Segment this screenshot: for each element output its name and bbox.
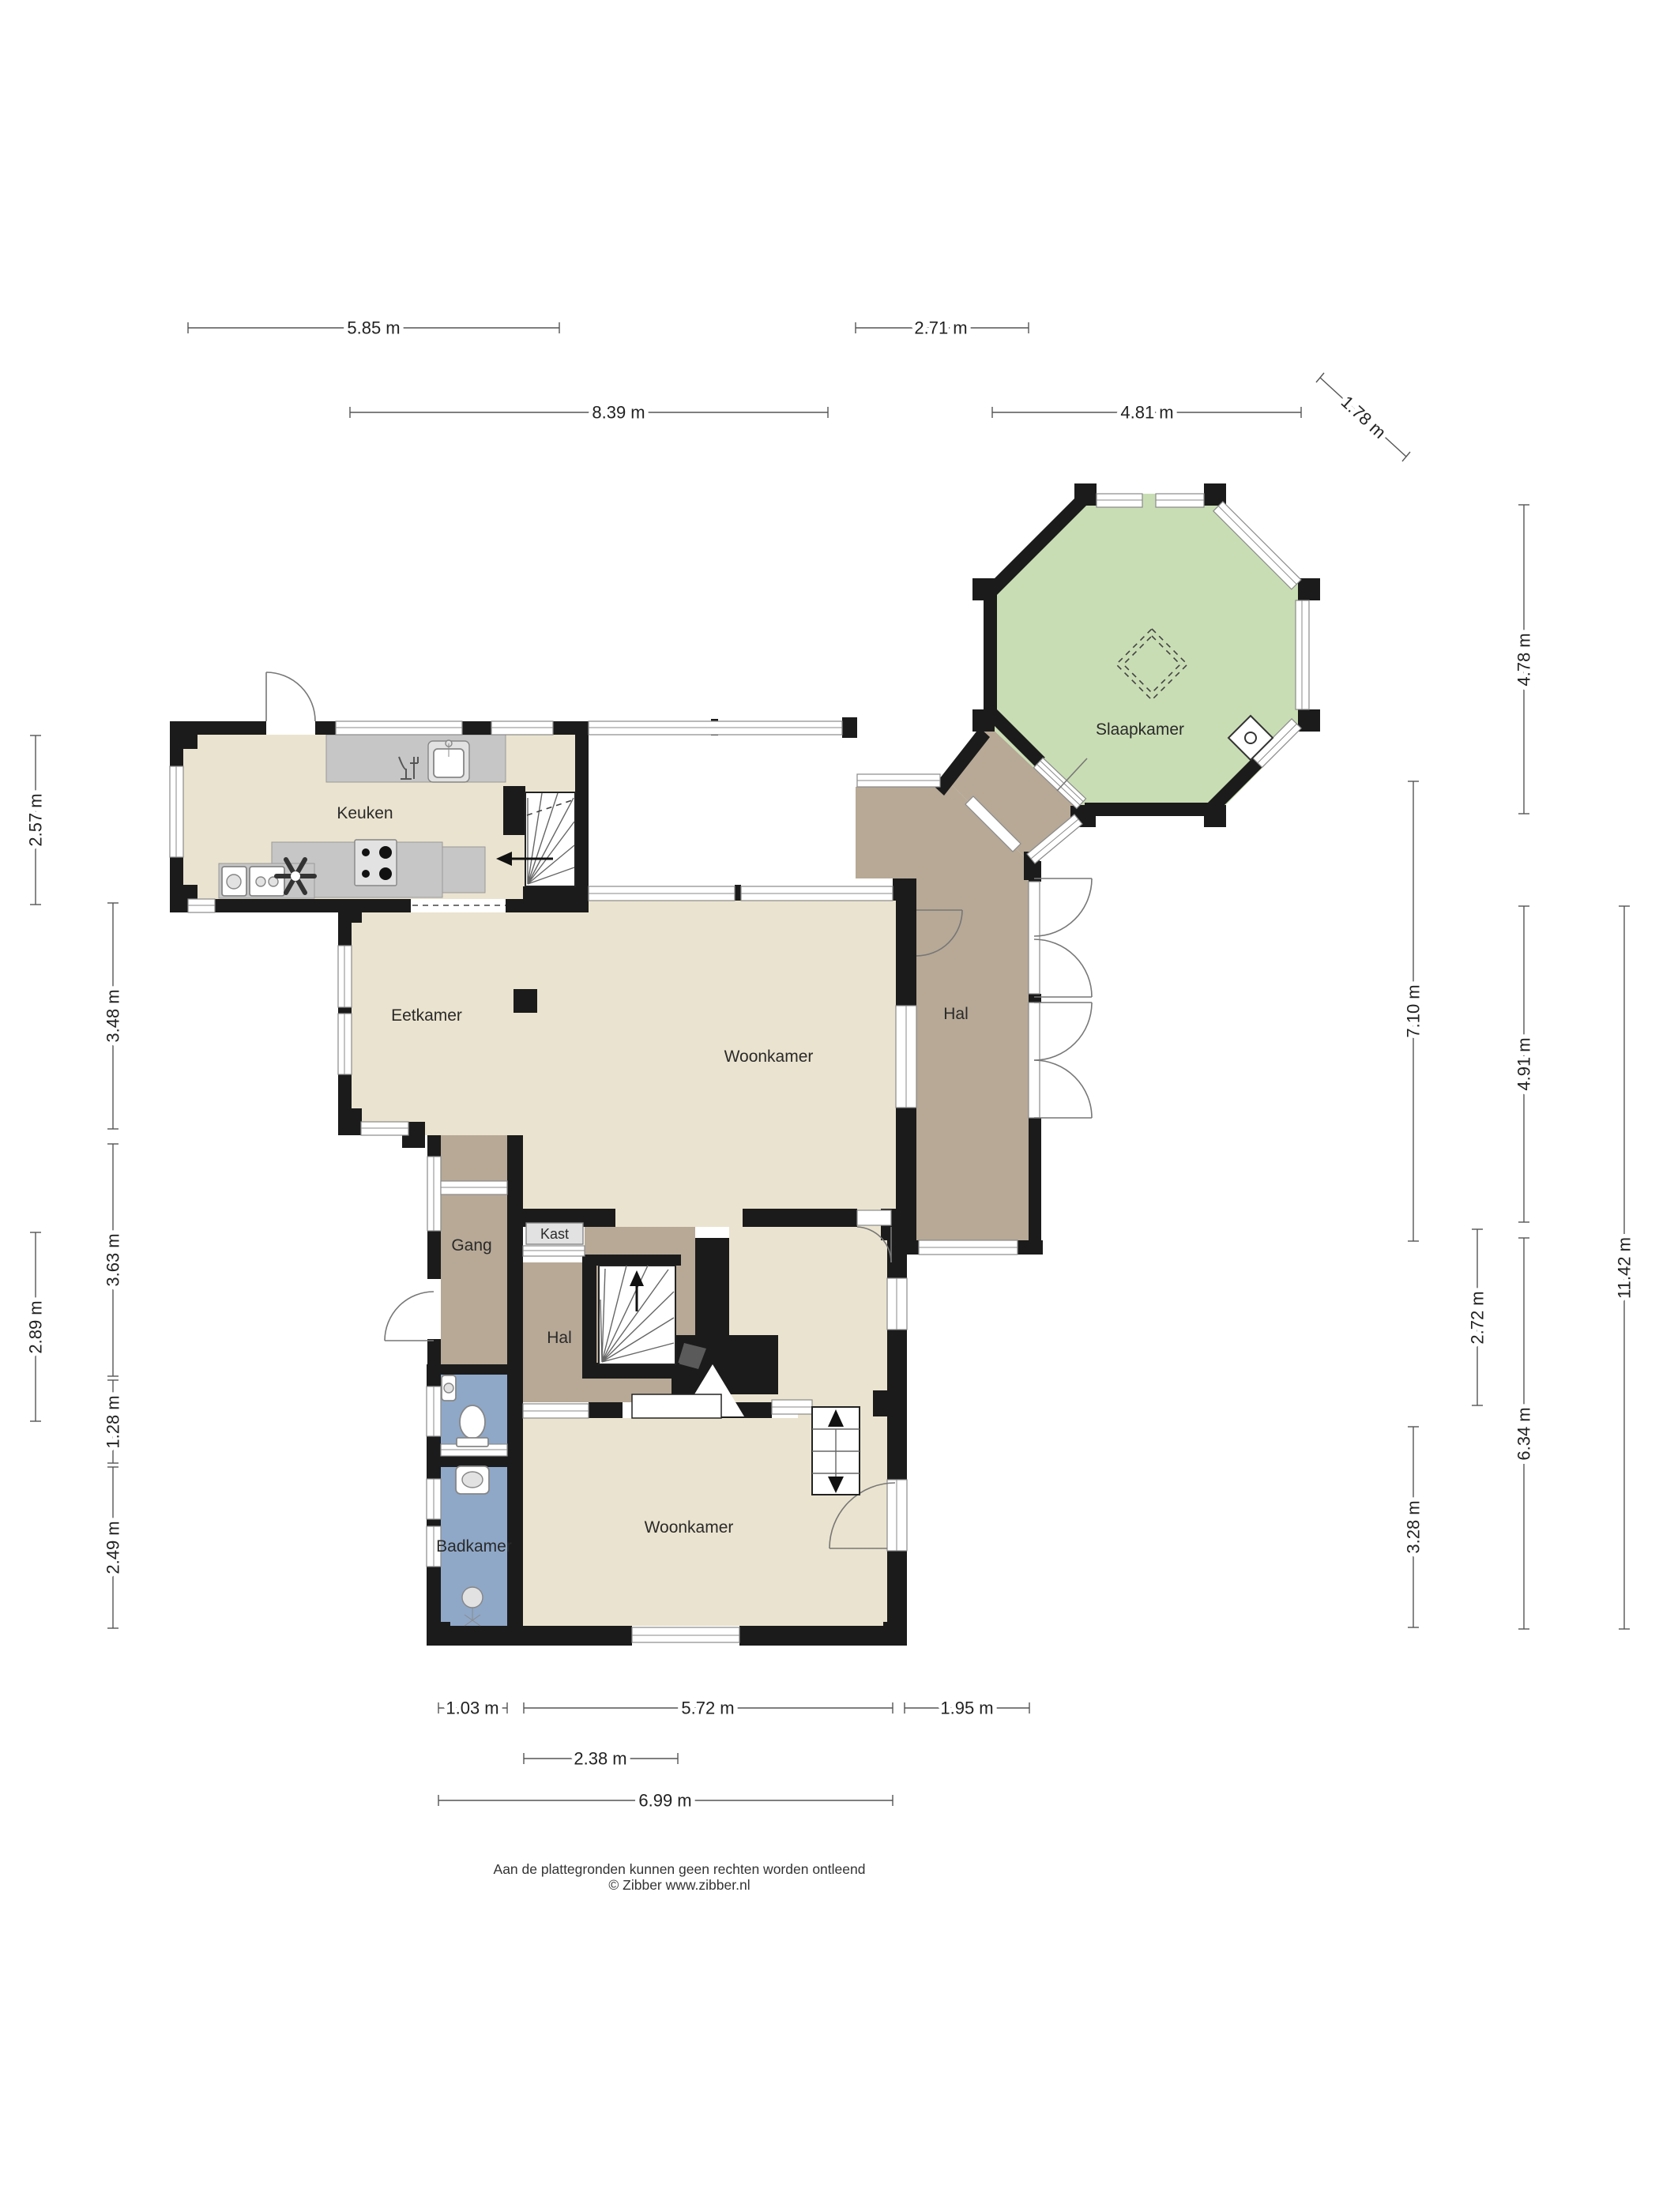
- window: [361, 1122, 408, 1135]
- door-opening: [887, 1480, 907, 1551]
- label-badkamer: Badkamer: [436, 1537, 512, 1556]
- interior-door-band: [523, 1404, 589, 1418]
- dim-left-289: 2.89 m: [26, 1232, 46, 1421]
- footer-copyright: © Zibber www.zibber.nl: [608, 1877, 750, 1893]
- svg-text:2.57 m: 2.57 m: [26, 793, 46, 846]
- svg-text:1.95 m: 1.95 m: [940, 1698, 993, 1718]
- window: [857, 774, 940, 787]
- window: [338, 1014, 352, 1074]
- label-hal-onder: Hal: [547, 1329, 572, 1347]
- hal-french-door-4: [1034, 1060, 1092, 1118]
- window: [772, 1400, 812, 1414]
- kitchen-island-ext: [442, 847, 485, 893]
- svg-text:2.72 m: 2.72 m: [1468, 1291, 1488, 1344]
- floorplan-canvas: Keuken Eetkamer Woonkamer Hal Slaapkamer…: [0, 0, 1659, 2212]
- burner-icon: [362, 870, 370, 878]
- label-gang: Gang: [451, 1236, 491, 1255]
- dim-right-328: 3.28 m: [1404, 1427, 1424, 1627]
- svg-text:11.42 m: 11.42 m: [1615, 1237, 1635, 1299]
- window: [589, 886, 735, 901]
- svg-text:5.72 m: 5.72 m: [681, 1698, 734, 1718]
- dim-top-585: 5.85 m: [188, 318, 559, 338]
- hal-french-door-3: [1034, 1003, 1092, 1060]
- dim-right-710: 7.10 m: [1404, 781, 1424, 1241]
- toilet-icon: [460, 1405, 485, 1439]
- pillar: [513, 989, 537, 1013]
- burner-icon: [379, 867, 392, 880]
- stove-icon: [355, 840, 397, 886]
- window: [919, 1240, 1018, 1255]
- dim-right-1142: 11.42 m: [1615, 906, 1635, 1629]
- svg-text:1.03 m: 1.03 m: [446, 1698, 498, 1718]
- window: [1097, 494, 1142, 507]
- window: [1156, 494, 1204, 507]
- footer-disclaimer: Aan de plattegronden kunnen geen rechten…: [494, 1861, 866, 1877]
- label-slaapkamer: Slaapkamer: [1096, 720, 1184, 739]
- bath-sink-basin-icon: [462, 1472, 483, 1488]
- svg-text:6.34 m: 6.34 m: [1514, 1407, 1534, 1460]
- svg-text:4.78 m: 4.78 m: [1514, 633, 1534, 686]
- burner-icon: [362, 848, 370, 856]
- floorplan-page: Keuken Eetkamer Woonkamer Hal Slaapkamer…: [0, 0, 1659, 2212]
- washer-door-icon: [227, 875, 241, 889]
- label-hal-boven: Hal: [943, 1005, 969, 1023]
- dim-right-491: 4.91 m: [1514, 906, 1534, 1222]
- window: [741, 886, 893, 901]
- svg-text:2.38 m: 2.38 m: [574, 1749, 626, 1769]
- window: [427, 1157, 441, 1231]
- dim-bottom-103: 1.03 m: [438, 1698, 507, 1718]
- dim-left-249: 2.49 m: [103, 1467, 123, 1628]
- central-winder-stairs: [599, 1266, 675, 1364]
- kast-door-band: [523, 1246, 585, 1256]
- hal-french-door-2: [1034, 939, 1092, 997]
- dim-left-128: 1.28 m: [103, 1380, 123, 1463]
- svg-text:3.63 m: 3.63 m: [103, 1233, 123, 1286]
- svg-text:6.99 m: 6.99 m: [638, 1791, 691, 1811]
- window: [427, 1479, 441, 1519]
- wc-sink-basin-icon: [444, 1383, 453, 1393]
- window: [887, 1278, 907, 1330]
- label-woonkamer-boven: Woonkamer: [724, 1048, 814, 1066]
- french-door-opening: [1029, 882, 1040, 994]
- kitchen-entry-door: [266, 672, 315, 721]
- dim-right-272: 2.72 m: [1468, 1229, 1488, 1405]
- gang-exterior-door: [385, 1292, 434, 1341]
- window: [170, 766, 183, 857]
- window-band-courtyard: [589, 721, 842, 735]
- svg-text:8.39 m: 8.39 m: [592, 403, 645, 423]
- window: [427, 1386, 441, 1436]
- label-keuken: Keuken: [337, 804, 393, 822]
- door-opening: [857, 1210, 891, 1225]
- dim-top-481: 4.81 m: [992, 403, 1301, 423]
- boiler-icon: [250, 867, 284, 896]
- dim-bottom-699: 6.99 m: [438, 1791, 893, 1811]
- window: [632, 1627, 739, 1642]
- kitchen-counter-top: [326, 735, 506, 782]
- footer: Aan de plattegronden kunnen geen rechten…: [494, 1861, 866, 1893]
- interior-door-band: [441, 1181, 507, 1194]
- dim-left-348: 3.48 m: [103, 903, 123, 1129]
- svg-text:2.49 m: 2.49 m: [103, 1521, 123, 1574]
- window: [491, 721, 553, 735]
- svg-text:7.10 m: 7.10 m: [1404, 984, 1424, 1037]
- dim-left-363: 3.63 m: [103, 1144, 123, 1376]
- window: [338, 946, 352, 1007]
- toilet-tank-icon: [457, 1438, 488, 1446]
- boiler-dial-icon: [256, 877, 265, 886]
- dim-left-257: 2.57 m: [26, 735, 46, 905]
- dim-top-839: 8.39 m: [350, 403, 828, 423]
- dim-top-271: 2.71 m: [856, 318, 1029, 338]
- dim-bottom-572: 5.72 m: [524, 1698, 893, 1718]
- dim-right-478: 4.78 m: [1514, 505, 1534, 814]
- hearth-front: [632, 1394, 721, 1418]
- svg-text:4.81 m: 4.81 m: [1120, 403, 1173, 423]
- window: [1296, 600, 1309, 709]
- svg-text:1.28 m: 1.28 m: [103, 1395, 123, 1448]
- svg-text:3.48 m: 3.48 m: [103, 989, 123, 1042]
- burner-icon: [379, 846, 392, 859]
- straight-stairs: [812, 1407, 860, 1495]
- label-woonkamer-onder: Woonkamer: [645, 1518, 734, 1537]
- shower-head-icon: [462, 1587, 483, 1608]
- label-eetkamer: Eetkamer: [391, 1006, 462, 1025]
- svg-text:2.89 m: 2.89 m: [26, 1300, 46, 1353]
- dim-right-634: 6.34 m: [1514, 1238, 1534, 1629]
- dim-diag-178: 1.78 m: [1316, 373, 1410, 461]
- label-kast: Kast: [540, 1226, 569, 1242]
- svg-text:2.71 m: 2.71 m: [914, 318, 967, 338]
- svg-text:1.78 m: 1.78 m: [1337, 392, 1390, 442]
- window: [336, 721, 462, 735]
- dim-bottom-195: 1.95 m: [905, 1698, 1029, 1718]
- svg-text:3.28 m: 3.28 m: [1404, 1500, 1424, 1553]
- window: [896, 1006, 916, 1108]
- window: [188, 899, 215, 912]
- dim-bottom-238: 2.38 m: [524, 1749, 678, 1769]
- hal-french-door-1: [1034, 878, 1092, 936]
- svg-text:4.91 m: 4.91 m: [1514, 1037, 1534, 1090]
- svg-text:5.85 m: 5.85 m: [347, 318, 400, 338]
